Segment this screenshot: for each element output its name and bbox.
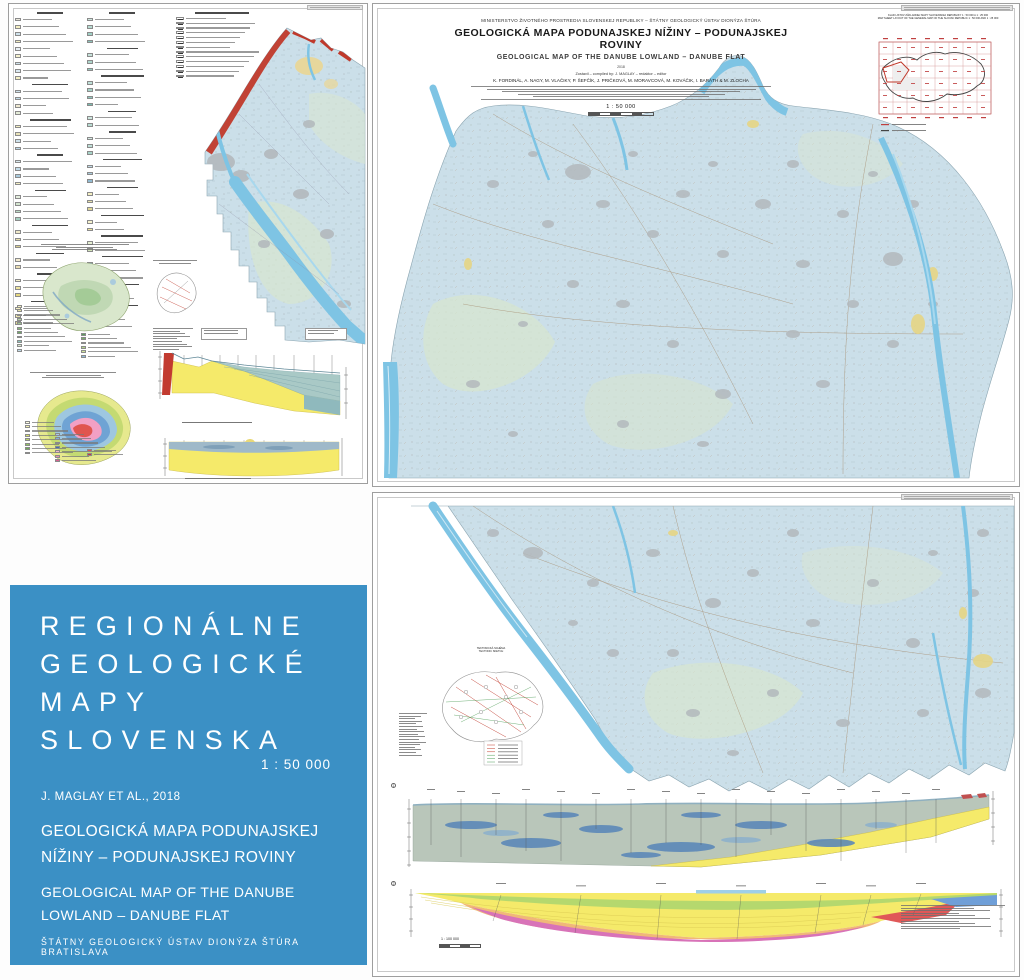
quaternary-inset-legend-1 xyxy=(17,304,79,352)
legend-row xyxy=(25,451,55,455)
series-line-1: REGIONÁLNE xyxy=(40,607,312,645)
legend-row xyxy=(15,173,85,180)
legend-row xyxy=(87,177,157,184)
series-line-4: SLOVENSKA xyxy=(40,721,312,759)
legend-row xyxy=(17,348,79,352)
legend-row xyxy=(15,236,85,243)
legend-row xyxy=(15,110,85,117)
series-title: REGIONÁLNE GEOLOGICKÉ MAPY SLOVENSKA xyxy=(40,607,312,759)
sheet-index-inset: KLAD LISTOV ZÁKLADNEJ MAPY SLOVENSKEJ RE… xyxy=(871,14,1005,143)
legend-row xyxy=(87,226,157,233)
section-scale-text: 1 : 100 000 xyxy=(441,938,459,942)
legend-row xyxy=(87,38,157,45)
legend-row xyxy=(87,58,157,65)
south-map-sheet: TEKTONICKÁ SCHÉMA TECTONIC SKETCH 1 2 xyxy=(372,492,1020,977)
legend-row xyxy=(87,114,157,121)
section-notes-block xyxy=(901,905,1007,931)
main-title-block: MINISTERSTVO ŽIVOTNÉHO PROSTREDIA SLOVEN… xyxy=(441,18,801,116)
legend-row xyxy=(87,198,157,205)
cover-title-sk: GEOLOGICKÁ MAPA PODUNAJSKEJ NÍŽINY – POD… xyxy=(41,819,319,871)
section-1-marker: 1 xyxy=(391,783,396,788)
map-title-sk: GEOLOGICKÁ MAPA PODUNAJSKEJ NÍŽINY – POD… xyxy=(441,27,801,51)
legend-row xyxy=(15,67,85,74)
legend-row xyxy=(87,219,157,226)
series-line-3: MAPY xyxy=(40,683,312,721)
legend-row xyxy=(87,101,157,108)
series-cover: REGIONÁLNE GEOLOGICKÉ MAPY SLOVENSKA 1 :… xyxy=(10,585,367,965)
south-cross-section-1 xyxy=(401,785,1001,873)
cover-title-en: GEOLOGICAL MAP OF THE DANUBE LOWLAND – D… xyxy=(41,881,295,927)
legend-row xyxy=(87,66,157,73)
legend-row xyxy=(55,458,85,462)
map-title-en: GEOLOGICAL MAP OF THE DANUBE LOWLAND – D… xyxy=(441,54,801,61)
tectonic-title-en: TECTONIC SKETCH xyxy=(435,650,547,653)
legend-row xyxy=(15,45,85,52)
cover-title-sk-line1: GEOLOGICKÁ MAPA PODUNAJSKEJ xyxy=(41,819,319,845)
main-map-sheet: MINISTERSTVO ŽIVOTNÉHO PROSTREDIA SLOVEN… xyxy=(372,3,1020,487)
legend-row xyxy=(87,142,157,149)
quaternary-inset-title xyxy=(37,244,132,252)
map-scale: 1 : 50 000 xyxy=(441,104,801,110)
credits-paragraph xyxy=(441,86,801,100)
compiled-by-line: Zostavil – compiled by: J. MAGLAY – reda… xyxy=(441,72,801,76)
legend-row xyxy=(15,180,85,187)
authors-line: K. FORDINÁL, A. NAGY, M. VLAČIKY, P. ŠEF… xyxy=(441,78,801,83)
legend-row xyxy=(15,102,85,109)
nw-map-sheet xyxy=(8,3,368,484)
cover-scale: 1 : 50 000 xyxy=(261,757,331,772)
legend-row xyxy=(87,51,157,58)
legend-row xyxy=(15,88,85,95)
poster-composite: MINISTERSTVO ŽIVOTNÉHO PROSTREDIA SLOVEN… xyxy=(0,0,1024,980)
legend-row xyxy=(87,122,157,129)
legend-row xyxy=(15,201,85,208)
legend-row xyxy=(15,95,85,102)
tectonic-inset-graphic xyxy=(426,657,556,767)
legend-row xyxy=(15,60,85,67)
legend-row xyxy=(87,94,157,101)
thickness-legend-extra xyxy=(87,448,113,457)
quaternary-inset-legend-2 xyxy=(81,332,133,358)
tectonic-numbered-list xyxy=(399,713,429,757)
section-scale-bar xyxy=(439,944,481,948)
legend-row xyxy=(87,149,157,156)
legend-row xyxy=(15,193,85,200)
outline-inset-title xyxy=(151,260,199,265)
legend-row xyxy=(15,23,85,30)
legend-row xyxy=(15,228,85,235)
legend-row xyxy=(87,86,157,93)
legend-row xyxy=(15,52,85,59)
tectonic-inset-title: TEKTONICKÁ SCHÉMA TECTONIC SKETCH xyxy=(435,647,547,653)
map-year: 2018 xyxy=(441,65,801,69)
legend-row xyxy=(15,208,85,215)
index-grid-graphic xyxy=(871,20,1005,138)
section-2-marker: 2 xyxy=(391,881,396,886)
legend-row xyxy=(15,16,85,23)
cover-title-en-line2: LOWLAND – DANUBE FLAT xyxy=(41,904,295,927)
thickness-legend-right xyxy=(55,432,85,463)
legend-row xyxy=(15,74,85,81)
symbol-legend-row xyxy=(176,74,268,79)
legend-row xyxy=(15,145,85,152)
nw-cross-section-2 xyxy=(159,428,345,482)
legend-row xyxy=(87,163,157,170)
map-symbols-legend xyxy=(176,10,268,78)
legend-row xyxy=(87,135,157,142)
legend-row xyxy=(87,23,157,30)
ministry-line: MINISTERSTVO ŽIVOTNÉHO PROSTREDIA SLOVEN… xyxy=(441,18,801,23)
legend-row xyxy=(15,215,85,222)
legend-row xyxy=(15,31,85,38)
series-line-2: GEOLOGICKÉ xyxy=(40,645,312,683)
legend-row xyxy=(87,205,157,212)
legend-row xyxy=(15,123,85,130)
legend-row xyxy=(87,191,157,198)
legend-row xyxy=(15,38,85,45)
legend-row xyxy=(15,165,85,172)
cover-publisher: ŠTÁTNY GEOLOGICKÝ ÚSTAV DIONÝZA ŠTÚRA BR… xyxy=(41,937,367,957)
legend-row xyxy=(15,158,85,165)
cover-title-en-line1: GEOLOGICAL MAP OF THE DANUBE xyxy=(41,881,295,904)
legend-row xyxy=(15,137,85,144)
legend-row xyxy=(87,31,157,38)
cover-title-sk-line2: NÍŽINY – PODUNAJSKEJ ROVINY xyxy=(41,845,319,871)
nw-cross-section-1 xyxy=(154,337,356,427)
cover-byline: J. MAGLAY ET AL., 2018 xyxy=(41,791,181,803)
legend-row xyxy=(87,452,113,456)
thickness-legend-left xyxy=(25,420,55,455)
legend-row xyxy=(87,16,157,23)
outline-inset-graphic xyxy=(152,267,199,325)
legend-row xyxy=(15,130,85,137)
thickness-inset-title xyxy=(27,372,119,380)
legend-row xyxy=(81,354,133,358)
legend-row xyxy=(87,79,157,86)
scale-bar xyxy=(588,112,654,117)
legend-row xyxy=(87,170,157,177)
